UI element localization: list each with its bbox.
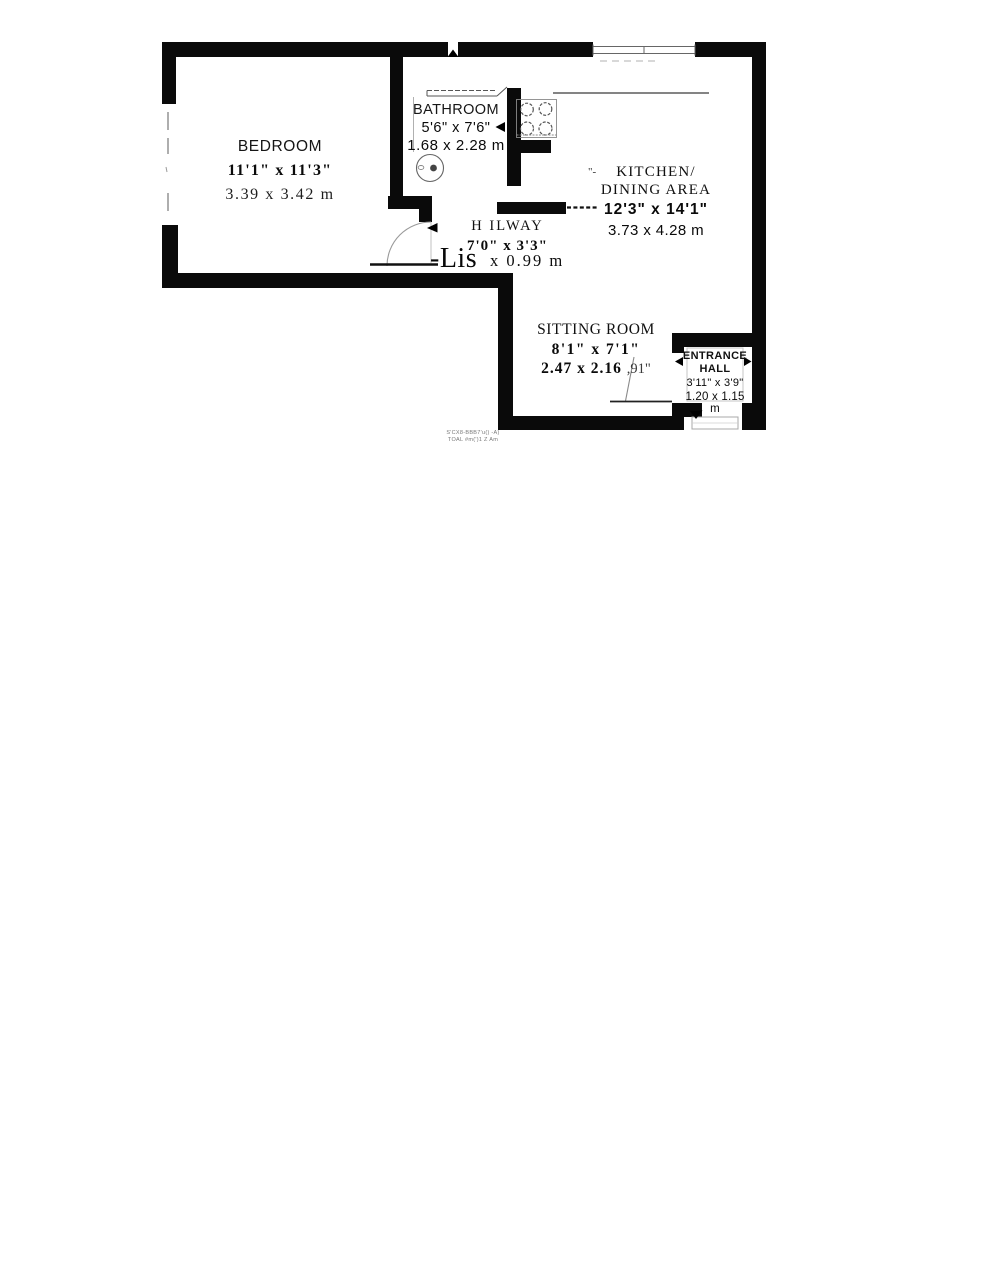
bedroom-door xyxy=(370,222,438,266)
sitting-room-name: SITTING ROOM xyxy=(528,322,664,338)
kitchen-dims-metric: 3.73 x 4.28 m xyxy=(595,223,717,238)
footer-scan-line2: TOAL #m(')1 Z Am xyxy=(428,437,518,444)
entrance-hall-dims-metric: 1.20 x 1.15 m xyxy=(681,392,749,415)
bathroom-dims-metric: 1.68 x 2.28 m xyxy=(400,138,512,153)
kitchen-window xyxy=(593,45,695,62)
room-label-bathroom: BATHROOM 5'6" x 7'6" 1.68 x 2.28 m xyxy=(400,103,512,153)
floorplan-page: BEDROOM 11'1" x 11'3" 3.39 x 3.42 m BATH… xyxy=(0,0,989,1280)
hallway-name: H ILWAY xyxy=(445,219,570,234)
room-label-sitting-room: SITTING ROOM 8'1" x 7'1" 2.47 x 2.16 ,91… xyxy=(528,322,664,377)
top-wall-up-arrow-icon xyxy=(448,50,459,58)
kitchen-name-line2: DINING AREA xyxy=(595,183,717,198)
sitting-room-scan-artifact: ,91" xyxy=(627,361,651,377)
bedroom-dims-metric: 3.39 x 3.42 m xyxy=(185,187,375,203)
hallway-dims-metric: x 0.99 m xyxy=(490,251,564,271)
bedroom-name: BEDROOM xyxy=(185,139,375,155)
sitting-room-metric-value: 2.47 x 2.16 xyxy=(541,360,622,377)
kitchen-name-line1: KITCHEN/ xyxy=(595,165,717,180)
room-label-bedroom: BEDROOM 11'1" x 11'3" 3.39 x 3.42 m xyxy=(185,139,375,203)
kitchen-dims-imperial: 12'3" x 14'1" xyxy=(595,202,717,218)
bedroom-dims-imperial: 11'1" x 11'3" xyxy=(185,163,375,179)
entrance-hall-dims-imperial: 3'11" x 3'9" xyxy=(681,378,749,389)
bathtub xyxy=(427,87,507,96)
bedroom-window xyxy=(166,112,168,211)
hallway-metric-artifact: -Lis xyxy=(430,243,477,275)
footer-scan-line1: S'CX8-BBB7'u() -A) xyxy=(428,430,518,437)
entrance-hall-name-line2: HALL xyxy=(681,364,749,375)
sitting-room-dims-imperial: 8'1" x 7'1" xyxy=(528,342,664,358)
bathroom-dims-imperial: 5'6" x 7'6" xyxy=(400,121,512,136)
sitting-room-dims-metric: 2.47 x 2.16 ,91" xyxy=(528,361,664,377)
room-label-kitchen: KITCHEN/ DINING AREA 12'3" x 14'1" 3.73 … xyxy=(595,165,717,238)
entrance-hall-name-line1: ENTRANCE xyxy=(681,351,749,362)
wash-basin xyxy=(417,155,444,182)
bathroom-name: BATHROOM xyxy=(400,103,512,118)
footer-scan-note: S'CX8-BBB7'u() -A) TOAL #m(')1 Z Am xyxy=(428,430,518,444)
stove-hob xyxy=(517,100,557,138)
room-label-entrance-hall: ENTRANCE HALL 3'11" x 3'9" 1.20 x 1.15 m xyxy=(681,351,749,415)
bedroom-door-arrow-icon xyxy=(427,223,438,233)
